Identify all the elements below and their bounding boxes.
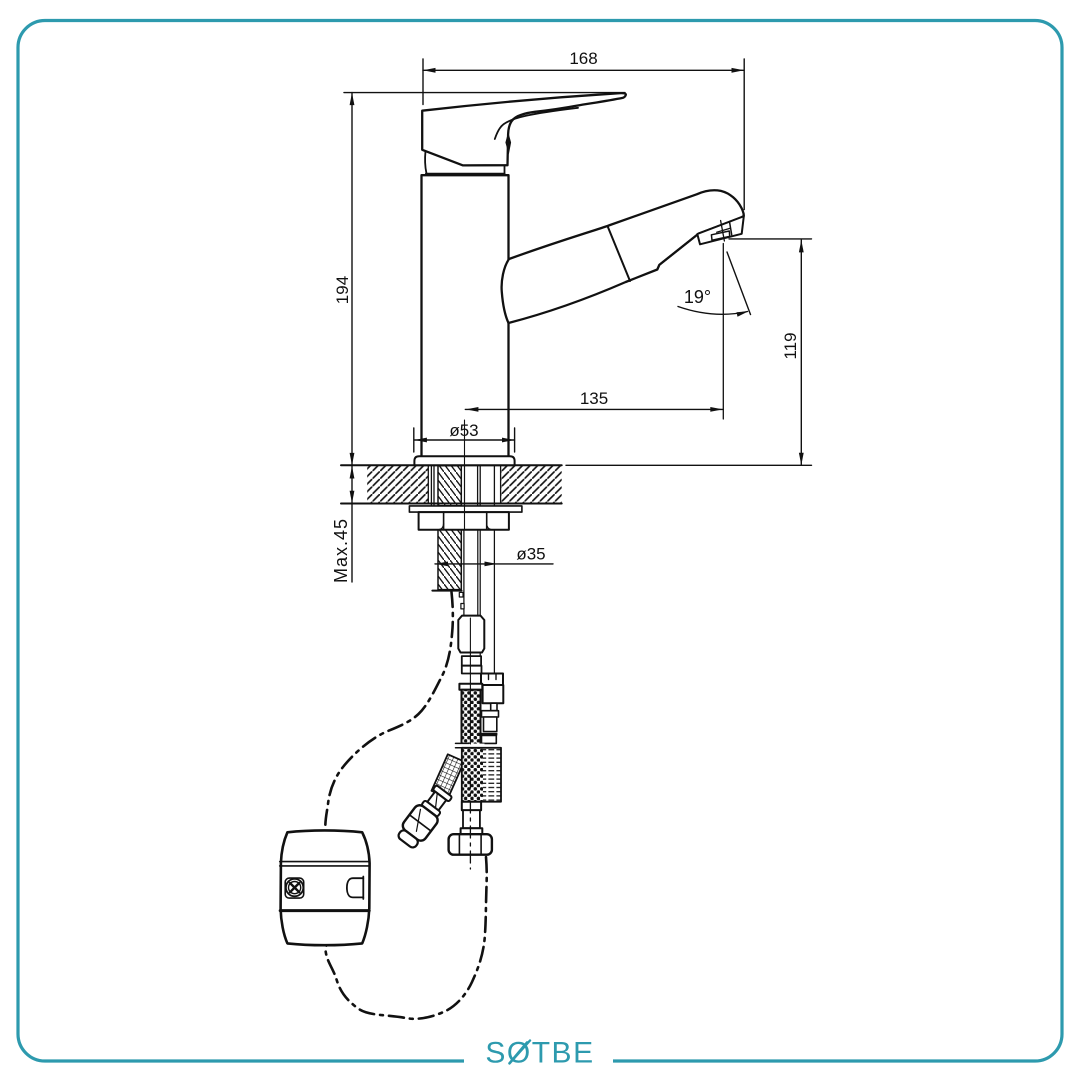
svg-text:SØTBE: SØTBE: [485, 1037, 594, 1070]
svg-text:ø35: ø35: [516, 545, 545, 564]
svg-text:194: 194: [333, 276, 352, 304]
svg-text:135: 135: [580, 389, 608, 408]
svg-text:19°: 19°: [684, 287, 711, 307]
svg-text:Max.45: Max.45: [331, 518, 351, 583]
svg-text:119: 119: [781, 332, 800, 359]
svg-text:168: 168: [569, 49, 597, 68]
